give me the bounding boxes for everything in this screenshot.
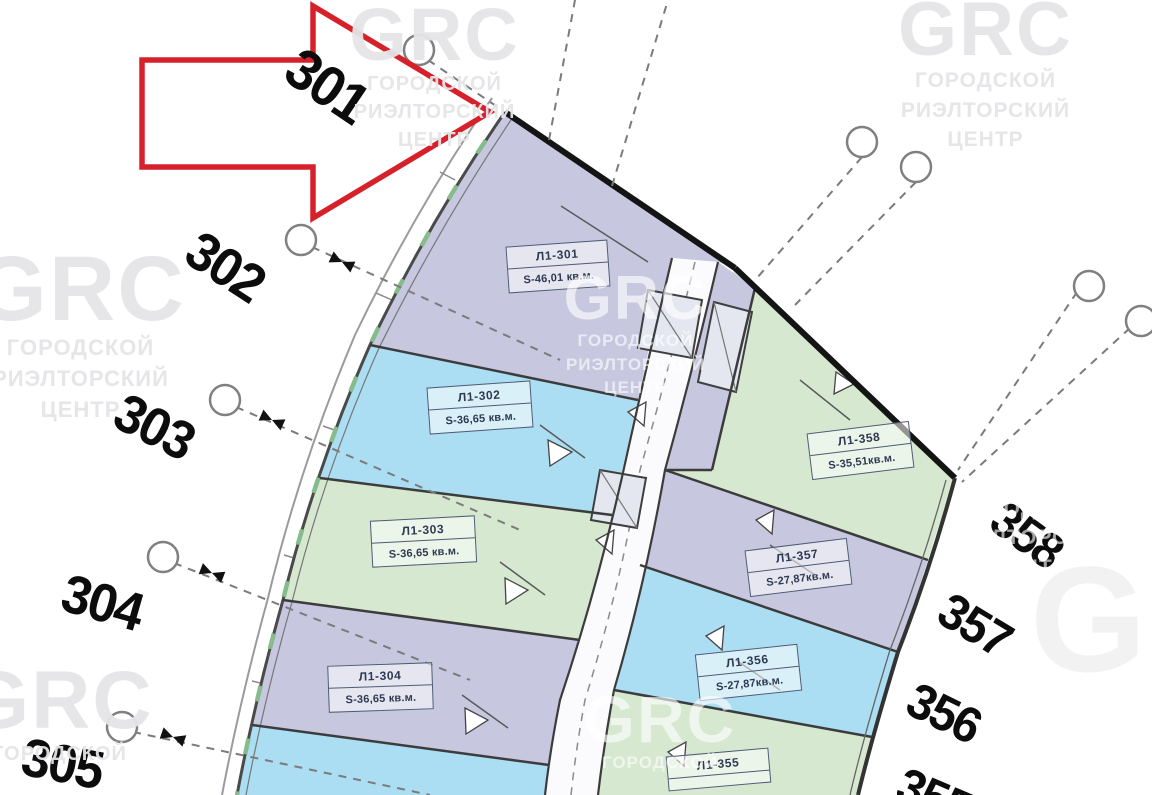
unit-label-303: Л1-303 S-36,65 кв.м. — [370, 515, 477, 567]
unit-label-304: Л1-304 S-36,65 кв.м. — [327, 662, 434, 713]
unit-label-301: Л1-301 S-46,01 кв.м. — [505, 239, 610, 293]
unit-label-302: Л1-302 S-36,65 кв.м. — [426, 380, 533, 434]
axis-number-305: 305 — [17, 730, 107, 795]
unit-area: S-36,65 кв.м. — [329, 685, 433, 712]
unit-area: S-36,65 кв.м. — [372, 538, 476, 566]
floor-plan-drawing — [0, 0, 1152, 795]
floor-plan-image: Л1-301 S-46,01 кв.м. Л1-302 S-36,65 кв.м… — [0, 0, 1152, 795]
